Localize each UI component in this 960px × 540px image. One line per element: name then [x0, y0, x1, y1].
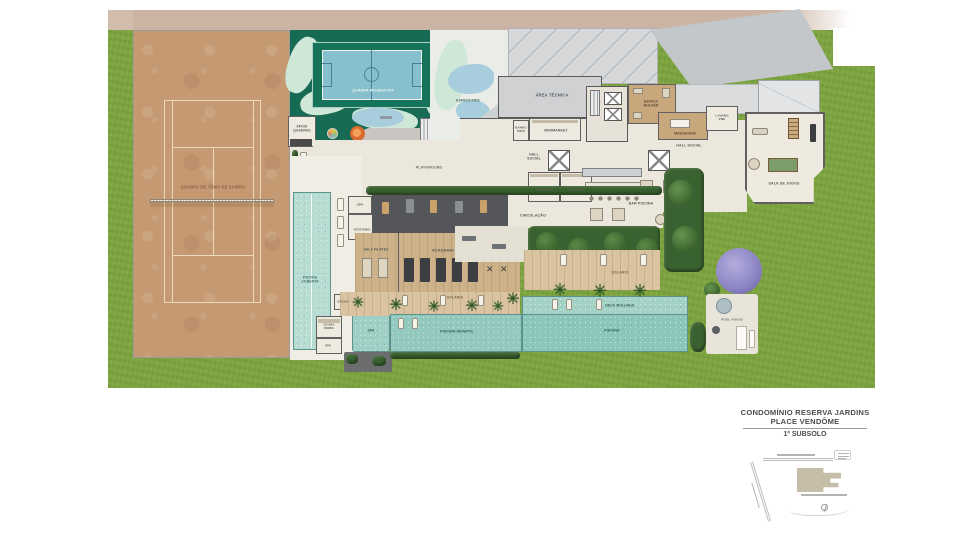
coberta-lounger-3: [337, 234, 344, 247]
play-disc: [327, 128, 338, 139]
treadmill-3: [436, 258, 446, 282]
praca-label-line-3: [838, 458, 846, 459]
sol-left-lounger-2: [440, 295, 446, 306]
mulher-furniture-3: [633, 112, 642, 119]
label-solario: SOLÁRIO: [447, 296, 464, 300]
minimap-praca-box: [834, 450, 851, 460]
building-annex: [758, 80, 820, 116]
piscina-coberta-lane: [311, 194, 312, 348]
minimap-street-main: [763, 458, 833, 461]
bar-stools: [587, 196, 641, 201]
street-label-placeholder-3: [801, 494, 847, 496]
games-wall-unit: [810, 124, 816, 142]
pilates-reformer-1: [362, 258, 372, 278]
label-espaco-mulher: ESPAÇO MULHER: [641, 100, 661, 108]
pool-hedge-bottom: [390, 352, 520, 359]
hedge-tree-1: [668, 180, 694, 206]
label-hall-social-2: HALL SOCIAL: [676, 144, 701, 148]
label-sauna-umida: SAUNA ÚMIDA: [322, 324, 337, 331]
street-label-placeholder-1: [777, 454, 815, 456]
mulher-furniture-1: [633, 88, 643, 94]
pilates-reformer-2: [378, 258, 388, 278]
label-bar-piscina: BAR PISCINA: [629, 202, 654, 206]
floor-plan-page: ✳ ✕ ✕: [0, 0, 960, 540]
pond-bench: [380, 116, 392, 119]
pool-house-counter: [736, 326, 747, 350]
pool-house-bench: [749, 330, 755, 348]
floor-title: 1º SUBSOLO: [735, 431, 875, 438]
lockers-1: [530, 174, 558, 177]
sol-left-lounger-3: [478, 295, 484, 306]
sol-right-lounger-1: [560, 254, 567, 266]
compass-icon: [821, 504, 828, 511]
pilates-partition: [398, 233, 399, 293]
praca-label-line-1: [838, 453, 849, 454]
label-pool-house: POOL HOUSE: [721, 318, 743, 322]
pond: [352, 108, 404, 127]
label-area-tecnica: ÁREA TÉCNICA: [535, 94, 568, 99]
label-spa: SPA: [357, 203, 364, 207]
wet-lounger-3: [596, 299, 602, 310]
mulher-furniture-2: [662, 88, 670, 98]
gym-xframe-1: ✕: [486, 264, 494, 275]
apoio-closet: [290, 139, 312, 146]
label-banho-kids: BANHO KIDS: [515, 127, 528, 134]
compass-needle: [823, 504, 827, 512]
games-round-table: [748, 158, 760, 170]
pool-table: [768, 158, 798, 172]
infantil-lounger-2: [412, 318, 418, 329]
massage-bed: [670, 119, 690, 128]
minimap: [735, 448, 875, 523]
label-hall-social: HALL SOCIAL: [525, 153, 542, 161]
palm-4: ✳: [465, 299, 478, 315]
label-vestiario-2: VESTIÁRIO: [567, 188, 585, 192]
palm-9: ✳: [633, 283, 647, 300]
coberta-lounger-2: [337, 216, 344, 229]
spa-bush-2: [372, 356, 386, 366]
label-spa-pool: SPA: [368, 329, 375, 333]
label-spa-2: SPA: [325, 344, 331, 347]
bar-kitchen-counter: [582, 168, 642, 177]
title-rule: [743, 428, 867, 429]
hedge-academia: [366, 186, 662, 195]
label-vestiario-1: VESTIÁRIO: [536, 188, 554, 192]
quadra-box-right: [412, 63, 422, 87]
wet-lounger-1: [552, 299, 558, 310]
pool-house-table: [716, 298, 732, 314]
foosball-table: [788, 118, 799, 139]
label-piscina-infantil: PISCINA INFANTIL: [440, 330, 474, 334]
tennis-net: [150, 199, 274, 202]
gym-xframe-2: ✕: [500, 264, 508, 275]
core-elevator-1: [604, 92, 622, 105]
wet-lounger-2: [566, 299, 572, 310]
project-title-line1: CONDOMÍNIO RESERVA JARDINS: [735, 408, 875, 417]
minimap-building-footprint: [797, 468, 841, 492]
tennis-net-shadow: [150, 202, 274, 207]
minimarket-shelves: [532, 120, 578, 123]
label-minimarket: MINIMARKET: [544, 129, 567, 133]
sol-right-lounger-3: [640, 254, 647, 266]
label-piscina-coberta: PISCINA COBERTA: [298, 276, 322, 284]
label-circulacao: CIRCULAÇÃO: [520, 214, 546, 218]
sol-left-lounger-1: [402, 295, 408, 306]
spiral-slide: [350, 126, 365, 141]
treadmill-2: [420, 258, 430, 282]
label-apoio-quadras: APOIO QUADRAS: [292, 125, 313, 133]
games-sofa: [752, 128, 768, 135]
label-quadra-recreativa: QUADRA RECREATIVA: [352, 89, 394, 93]
label-ducha: DUCHA: [337, 300, 348, 303]
praca-label-line-2: [838, 456, 849, 457]
minimap-street-curve: [789, 502, 849, 516]
planter-bench-1: [462, 236, 476, 241]
label-tennis: QUADRA DE TÊNIS DE SAIBRO: [181, 186, 246, 191]
purple-tree: [716, 248, 762, 294]
sol-right-lounger-2: [600, 254, 607, 266]
label-piscina: PISCINA: [604, 329, 619, 333]
project-title-line2: PLACE VENDÔME: [735, 417, 875, 426]
core-elevator-2: [604, 108, 622, 121]
pool-house-chair: [712, 326, 720, 334]
hall-elevator-right: [648, 150, 670, 171]
label-massagem: MASSAGEM: [674, 132, 695, 136]
palm-2: ✳: [389, 298, 402, 314]
palm-6: ✳: [506, 292, 519, 308]
treadmill-1: [404, 258, 414, 282]
label-espaco-kids: ESPAÇO KIDS: [456, 99, 480, 103]
label-academia: ACADEMIA: [432, 249, 454, 253]
coberta-lounger-1: [337, 198, 344, 211]
core-stair: [590, 90, 600, 116]
label-sala-de-jogos: SALA DE JOGOS: [768, 182, 799, 186]
label-vestiario-spa: VESTIÁRIO: [353, 228, 370, 231]
pool-hedge-right: [690, 322, 706, 352]
palm-1: ✳: [352, 296, 365, 311]
label-playground: PLAYGROUND: [416, 166, 442, 170]
palm-5: ✳: [492, 299, 504, 313]
label-deck-molhado: DECK MOLHADO: [605, 304, 634, 308]
title-block: CONDOMÍNIO RESERVA JARDINS PLACE VENDÔME…: [735, 400, 875, 525]
quadra-center-circle: [364, 67, 379, 82]
palm-7: ✳: [553, 282, 567, 299]
sauna-benches: [318, 319, 340, 323]
spa-bush-1: [346, 354, 358, 364]
label-lavabo-pne: LAVABO PNE: [714, 114, 731, 121]
planter-bench-2: [492, 244, 506, 249]
label-solario-2: SOLÁRIO: [611, 271, 628, 275]
infantil-lounger-1: [398, 318, 404, 329]
hedge-tree-2: [672, 226, 698, 252]
hall-elevator-left: [548, 150, 570, 171]
palm-8: ✳: [593, 283, 607, 300]
label-sala-pilates: SALA PILATES: [364, 248, 389, 252]
quadra-box-left: [322, 63, 332, 87]
palm-3: ✳: [428, 300, 441, 315]
